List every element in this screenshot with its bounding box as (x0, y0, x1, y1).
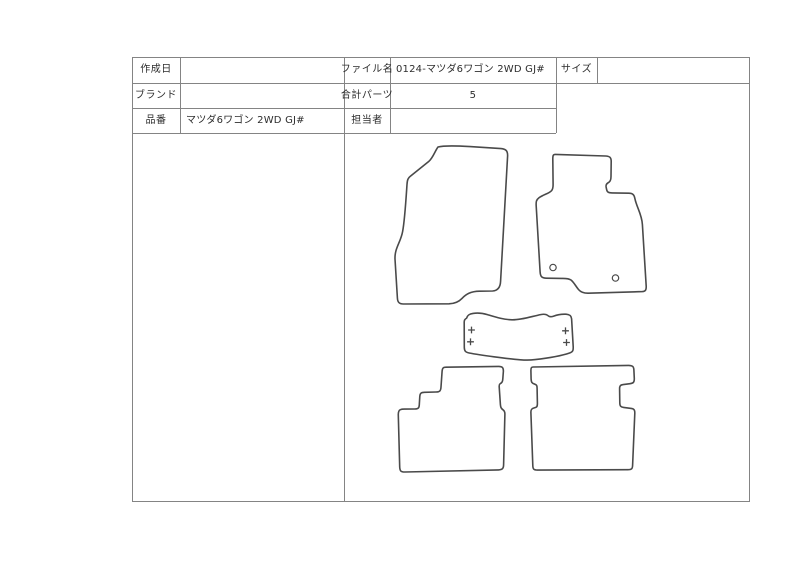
rear-right-mat-outline (531, 365, 635, 470)
center-tunnel-mat (464, 313, 573, 360)
front-passenger-mat-grommet-hole (550, 264, 556, 270)
center-tunnel-mat-outline (464, 313, 573, 360)
front-driver-mat-outline (395, 146, 508, 304)
center-tunnel-mat-clip-mark (562, 327, 569, 334)
mat-drawing-svg (0, 0, 800, 566)
rear-left-mat (398, 366, 505, 472)
center-tunnel-mat-clip-mark (467, 338, 474, 345)
scanned-floor-mat-spec-sheet: 作成日 ブランド 品番 マツダ6ワゴン 2WD GJ# ファイル名 0124-マ… (0, 0, 800, 566)
front-passenger-mat-grommet-hole (612, 275, 618, 281)
center-tunnel-mat-clip-mark (468, 327, 475, 334)
rear-right-mat (531, 365, 635, 470)
front-passenger-mat (536, 154, 646, 293)
center-tunnel-mat-clip-mark (563, 339, 570, 346)
front-passenger-mat-outline (536, 154, 646, 293)
rear-left-mat-outline (398, 366, 505, 472)
front-driver-mat (395, 146, 508, 304)
